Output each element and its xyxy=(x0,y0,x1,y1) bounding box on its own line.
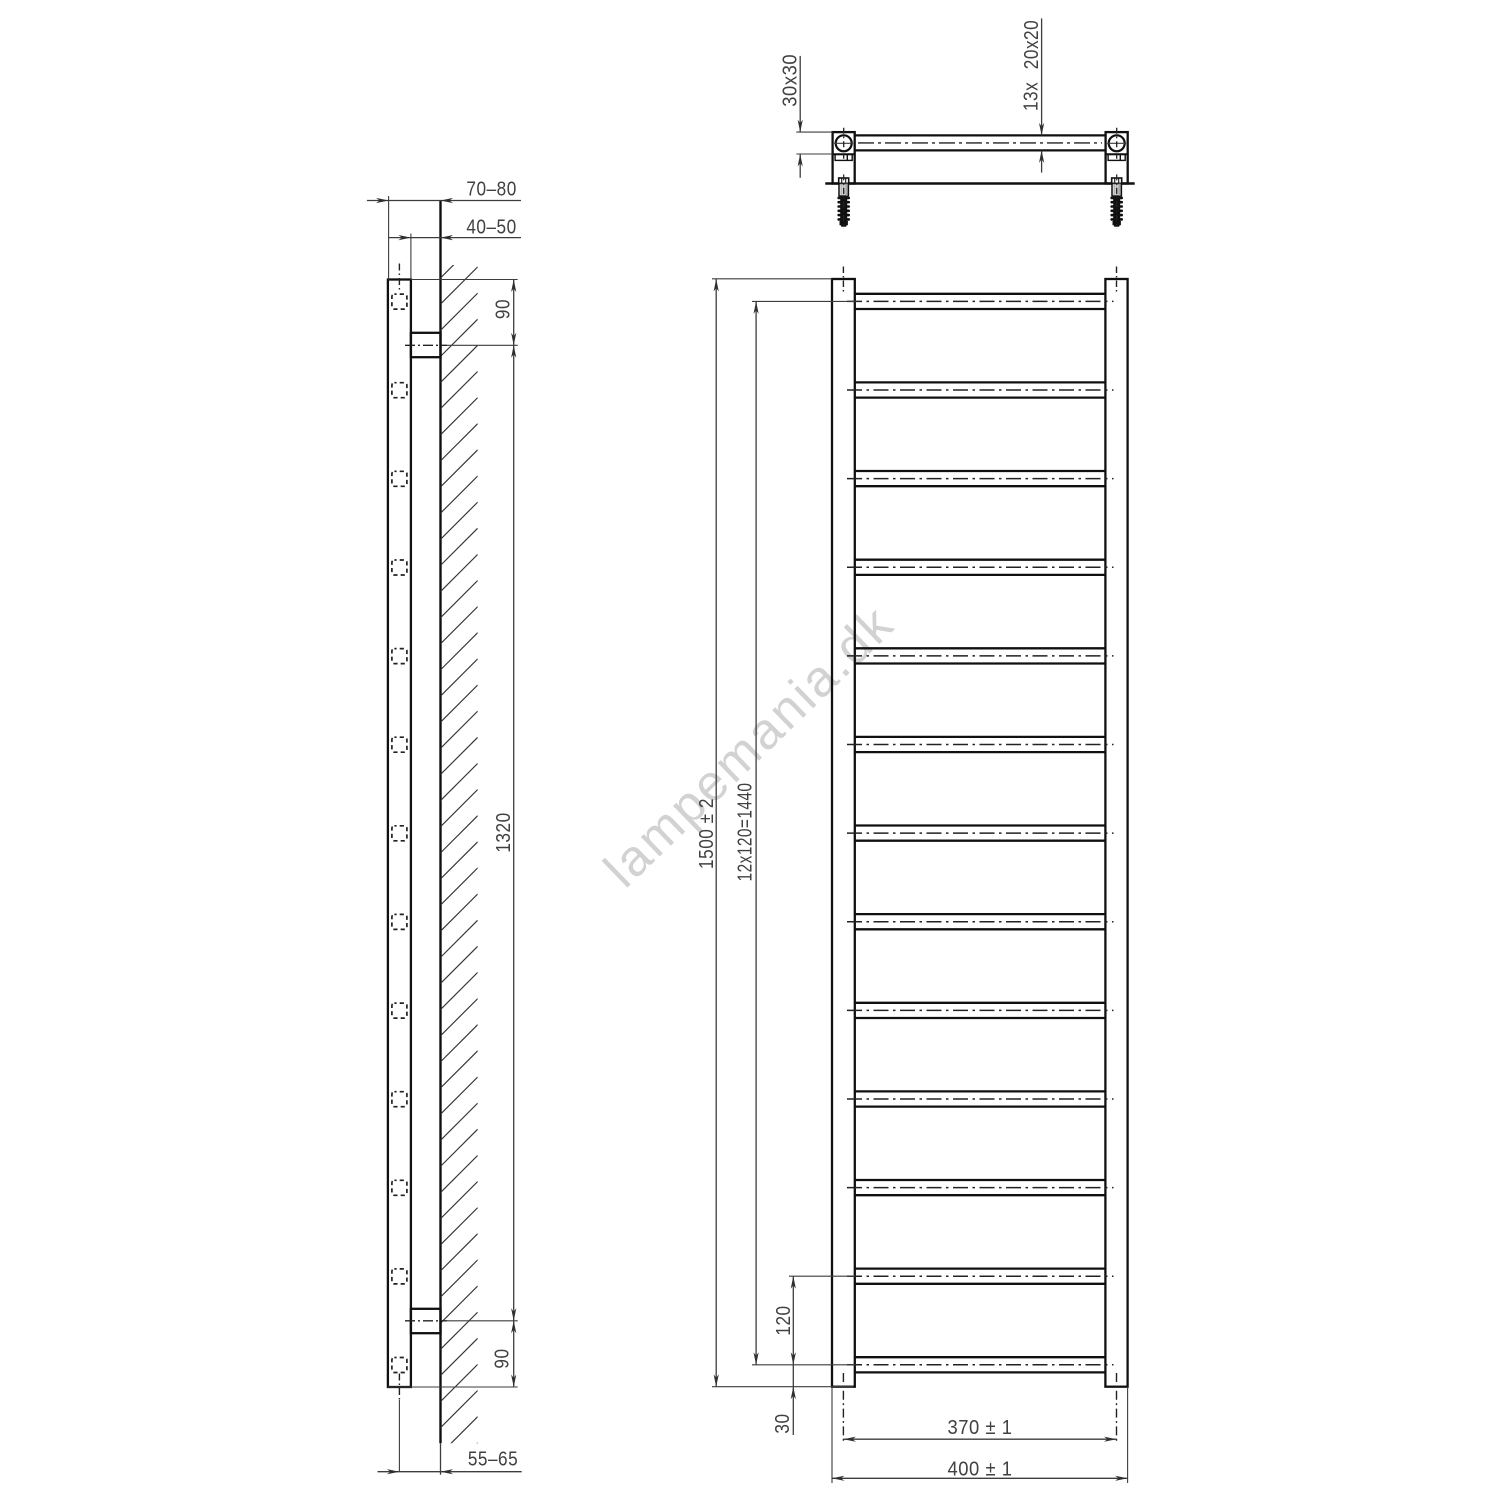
svg-text:70–80: 70–80 xyxy=(466,177,516,200)
svg-text:40–50: 40–50 xyxy=(466,215,516,238)
svg-text:370 ± 1: 370 ± 1 xyxy=(947,1417,1012,1439)
svg-text:120: 120 xyxy=(772,1305,795,1335)
svg-text:13x: 13x xyxy=(1019,82,1042,111)
svg-text:30: 30 xyxy=(771,1413,794,1433)
svg-text:400 ± 1: 400 ± 1 xyxy=(947,1459,1012,1481)
svg-text:55–65: 55–65 xyxy=(468,1447,518,1470)
svg-text:30x30: 30x30 xyxy=(780,54,802,107)
svg-text:20x20: 20x20 xyxy=(1020,20,1043,69)
svg-text:90: 90 xyxy=(490,1348,513,1368)
svg-text:1320: 1320 xyxy=(492,812,515,852)
svg-text:90: 90 xyxy=(491,299,514,319)
svg-text:1500 ± 2: 1500 ± 2 xyxy=(695,798,718,869)
svg-text:12x120=1440: 12x120=1440 xyxy=(734,783,756,882)
